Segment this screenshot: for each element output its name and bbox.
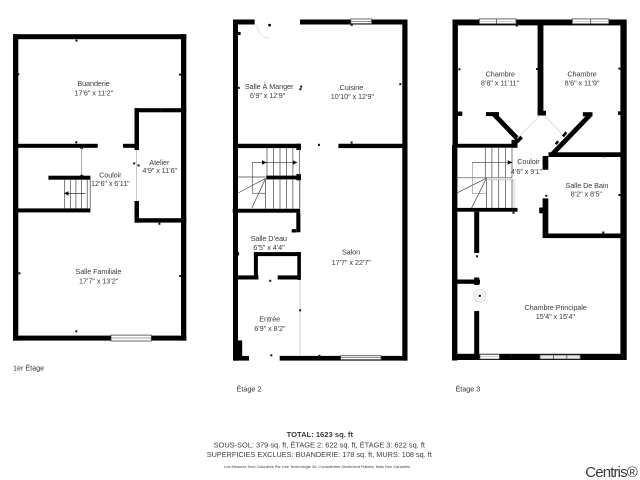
- svg-text:Cuisine: Cuisine: [340, 83, 364, 92]
- svg-text:Centris®: Centris®: [585, 464, 638, 480]
- svg-text:Salle D’eau: Salle D’eau: [251, 234, 287, 243]
- svg-text:8’8" x 11’11": 8’8" x 11’11": [481, 79, 520, 88]
- svg-text:6’5" x 4’4": 6’5" x 4’4": [253, 243, 285, 252]
- svg-text:SUPERFICIES EXCLUES: BUANDERIE: SUPERFICIES EXCLUES: BUANDERIE: 178 sq. …: [207, 450, 432, 459]
- svg-text:17’7" x 13’2": 17’7" x 13’2": [79, 276, 119, 285]
- svg-text:SOUS-SOL: 379 sq. ft, ÉTAGE 2:: SOUS-SOL: 379 sq. ft, ÉTAGE 2: 622 sq. f…: [214, 440, 425, 449]
- svg-text:Buanderie: Buanderie: [77, 79, 109, 88]
- svg-text:Les Mesures Sont Calculées Par: Les Mesures Sont Calculées Par Une Techn…: [224, 464, 411, 469]
- svg-text:Entrée: Entrée: [259, 314, 280, 323]
- svg-text:12’6" x 6’11": 12’6" x 6’11": [91, 179, 130, 188]
- svg-text:Salon: Salon: [342, 248, 360, 257]
- svg-text:8’2" x 8’5": 8’2" x 8’5": [571, 190, 603, 199]
- svg-text:6’9" x 12’9": 6’9" x 12’9": [250, 91, 286, 100]
- svg-text:Chambre Principale: Chambre Principale: [524, 303, 586, 312]
- svg-text:15’4" x 15’4": 15’4" x 15’4": [536, 312, 576, 321]
- svg-text:6’9" x 8’2": 6’9" x 8’2": [254, 324, 286, 333]
- svg-text:4’9" x 11’6": 4’9" x 11’6": [142, 166, 177, 175]
- svg-text:Salle À Manger: Salle À Manger: [245, 82, 294, 91]
- svg-text:TOTAL: 1623 sq. ft: TOTAL: 1623 sq. ft: [287, 430, 354, 439]
- svg-text:Étage 3: Étage 3: [456, 385, 481, 394]
- svg-text:Étage 2: Étage 2: [237, 385, 262, 394]
- svg-text:Couloir: Couloir: [517, 157, 540, 166]
- svg-text:8’6" x 11’9": 8’6" x 11’9": [565, 79, 600, 88]
- svg-text:10’10" x 12’9": 10’10" x 12’9": [331, 92, 375, 101]
- svg-text:1er Étage: 1er Étage: [13, 364, 44, 373]
- svg-text:Chambre: Chambre: [567, 70, 596, 79]
- svg-text:Salle Familiale: Salle Familiale: [75, 267, 121, 276]
- svg-text:Chambre: Chambre: [486, 70, 515, 79]
- svg-text:17’7" x 22’7": 17’7" x 22’7": [332, 258, 372, 267]
- svg-text:17’6" x 11’2": 17’6" x 11’2": [74, 88, 113, 97]
- svg-text:4’6" x 9’1": 4’6" x 9’1": [511, 167, 543, 176]
